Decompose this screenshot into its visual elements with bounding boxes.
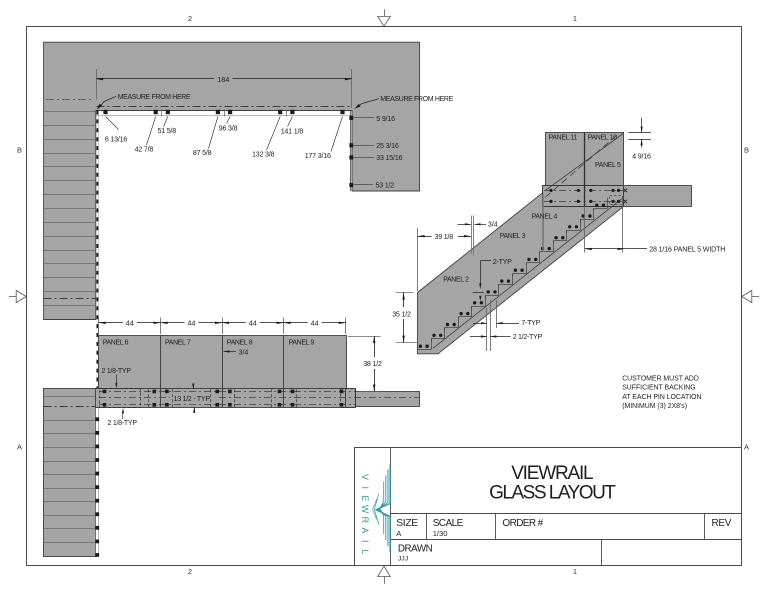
svg-text:132 3/8: 132 3/8 bbox=[252, 151, 275, 159]
svg-text:2: 2 bbox=[188, 14, 192, 23]
svg-text:MEASURE FROM HERE: MEASURE FROM HERE bbox=[118, 94, 191, 101]
svg-text:2 1/8-TYP: 2 1/8-TYP bbox=[102, 368, 132, 375]
svg-text:PANEL 11: PANEL 11 bbox=[549, 135, 578, 142]
svg-text:53 1/2: 53 1/2 bbox=[376, 182, 395, 190]
svg-text:DRAWN: DRAWN bbox=[398, 544, 433, 555]
svg-text:51 5/8: 51 5/8 bbox=[158, 127, 177, 135]
svg-text:7-TYP: 7-TYP bbox=[521, 319, 540, 327]
svg-text:141 1/8: 141 1/8 bbox=[281, 128, 304, 136]
svg-text:177 3/16: 177 3/16 bbox=[305, 152, 331, 160]
svg-text:44: 44 bbox=[126, 319, 134, 328]
svg-text:REV: REV bbox=[712, 518, 732, 529]
svg-text:25 3/16: 25 3/16 bbox=[376, 142, 399, 150]
svg-text:SCALE: SCALE bbox=[433, 518, 464, 529]
svg-text:VIEWRAIL: VIEWRAIL bbox=[511, 463, 593, 484]
svg-text:2 1/2-TYP: 2 1/2-TYP bbox=[513, 333, 543, 341]
svg-text:GLASS LAYOUT: GLASS LAYOUT bbox=[489, 483, 616, 504]
svg-text:44: 44 bbox=[249, 319, 257, 328]
svg-text:A: A bbox=[744, 443, 749, 452]
svg-text:L: L bbox=[360, 549, 370, 554]
svg-text:184: 184 bbox=[217, 75, 229, 84]
svg-text:JJJ: JJJ bbox=[398, 556, 408, 563]
svg-text:MEASURE FROM HERE: MEASURE FROM HERE bbox=[380, 96, 453, 103]
svg-text:5 9/16: 5 9/16 bbox=[376, 115, 395, 123]
svg-text:(MINIMUM (3) 2X8's): (MINIMUM (3) 2X8's) bbox=[622, 403, 687, 410]
svg-text:4 9/16: 4 9/16 bbox=[632, 152, 651, 160]
svg-text:PANEL 10: PANEL 10 bbox=[588, 135, 617, 142]
svg-text:96 3/8: 96 3/8 bbox=[219, 125, 238, 133]
svg-text:PANEL 4: PANEL 4 bbox=[532, 213, 558, 220]
svg-text:2 1/8-TYP: 2 1/8-TYP bbox=[108, 420, 138, 427]
svg-text:ORDER #: ORDER # bbox=[502, 518, 543, 529]
svg-text:PANEL 2: PANEL 2 bbox=[443, 277, 469, 284]
svg-text:PANEL 8: PANEL 8 bbox=[227, 340, 253, 347]
svg-text:87 5/8: 87 5/8 bbox=[193, 149, 212, 157]
svg-text:PANEL 6: PANEL 6 bbox=[103, 340, 129, 347]
svg-text:B: B bbox=[744, 146, 749, 155]
svg-text:42 7/8: 42 7/8 bbox=[135, 146, 154, 154]
svg-text:3/4: 3/4 bbox=[488, 221, 498, 229]
svg-text:SUFFICIENT BACKING: SUFFICIENT BACKING bbox=[622, 385, 695, 392]
svg-text:38 1/2: 38 1/2 bbox=[363, 360, 382, 368]
svg-text:28 1/16 PANEL 5 WIDTH: 28 1/16 PANEL 5 WIDTH bbox=[649, 245, 725, 253]
svg-text:3/4: 3/4 bbox=[239, 348, 249, 356]
svg-text:CUSTOMER MUST ADD: CUSTOMER MUST ADD bbox=[622, 376, 699, 383]
svg-text:PANEL 3: PANEL 3 bbox=[500, 233, 526, 240]
svg-text:A: A bbox=[17, 443, 22, 452]
svg-text:1: 1 bbox=[573, 567, 577, 576]
svg-text:33 15/16: 33 15/16 bbox=[376, 154, 402, 162]
svg-text:2-TYP: 2-TYP bbox=[493, 258, 512, 266]
svg-text:W: W bbox=[360, 505, 370, 514]
svg-text:39 1/8: 39 1/8 bbox=[435, 233, 454, 241]
svg-text:A: A bbox=[360, 528, 370, 534]
svg-text:I: I bbox=[360, 540, 370, 542]
svg-text:AT EACH PIN LOCATION: AT EACH PIN LOCATION bbox=[622, 394, 701, 401]
svg-text:1/30: 1/30 bbox=[433, 529, 448, 538]
svg-text:1: 1 bbox=[573, 14, 577, 23]
svg-text:13 1/2 - TYP: 13 1/2 - TYP bbox=[174, 396, 211, 403]
svg-text:44: 44 bbox=[187, 319, 195, 328]
svg-text:I: I bbox=[360, 486, 370, 488]
svg-text:R: R bbox=[360, 517, 370, 523]
svg-text:PANEL 9: PANEL 9 bbox=[289, 340, 315, 347]
svg-text:PANEL 5: PANEL 5 bbox=[595, 162, 621, 169]
svg-text:44: 44 bbox=[311, 319, 319, 328]
svg-text:35 1/2: 35 1/2 bbox=[392, 310, 411, 318]
svg-text:6 13/16: 6 13/16 bbox=[105, 135, 128, 143]
svg-text:PANEL 7: PANEL 7 bbox=[165, 340, 191, 347]
svg-text:2: 2 bbox=[188, 567, 192, 576]
svg-text:E: E bbox=[360, 495, 370, 501]
svg-text:B: B bbox=[17, 146, 22, 155]
svg-text:V: V bbox=[360, 474, 370, 480]
svg-text:SIZE: SIZE bbox=[396, 518, 418, 529]
